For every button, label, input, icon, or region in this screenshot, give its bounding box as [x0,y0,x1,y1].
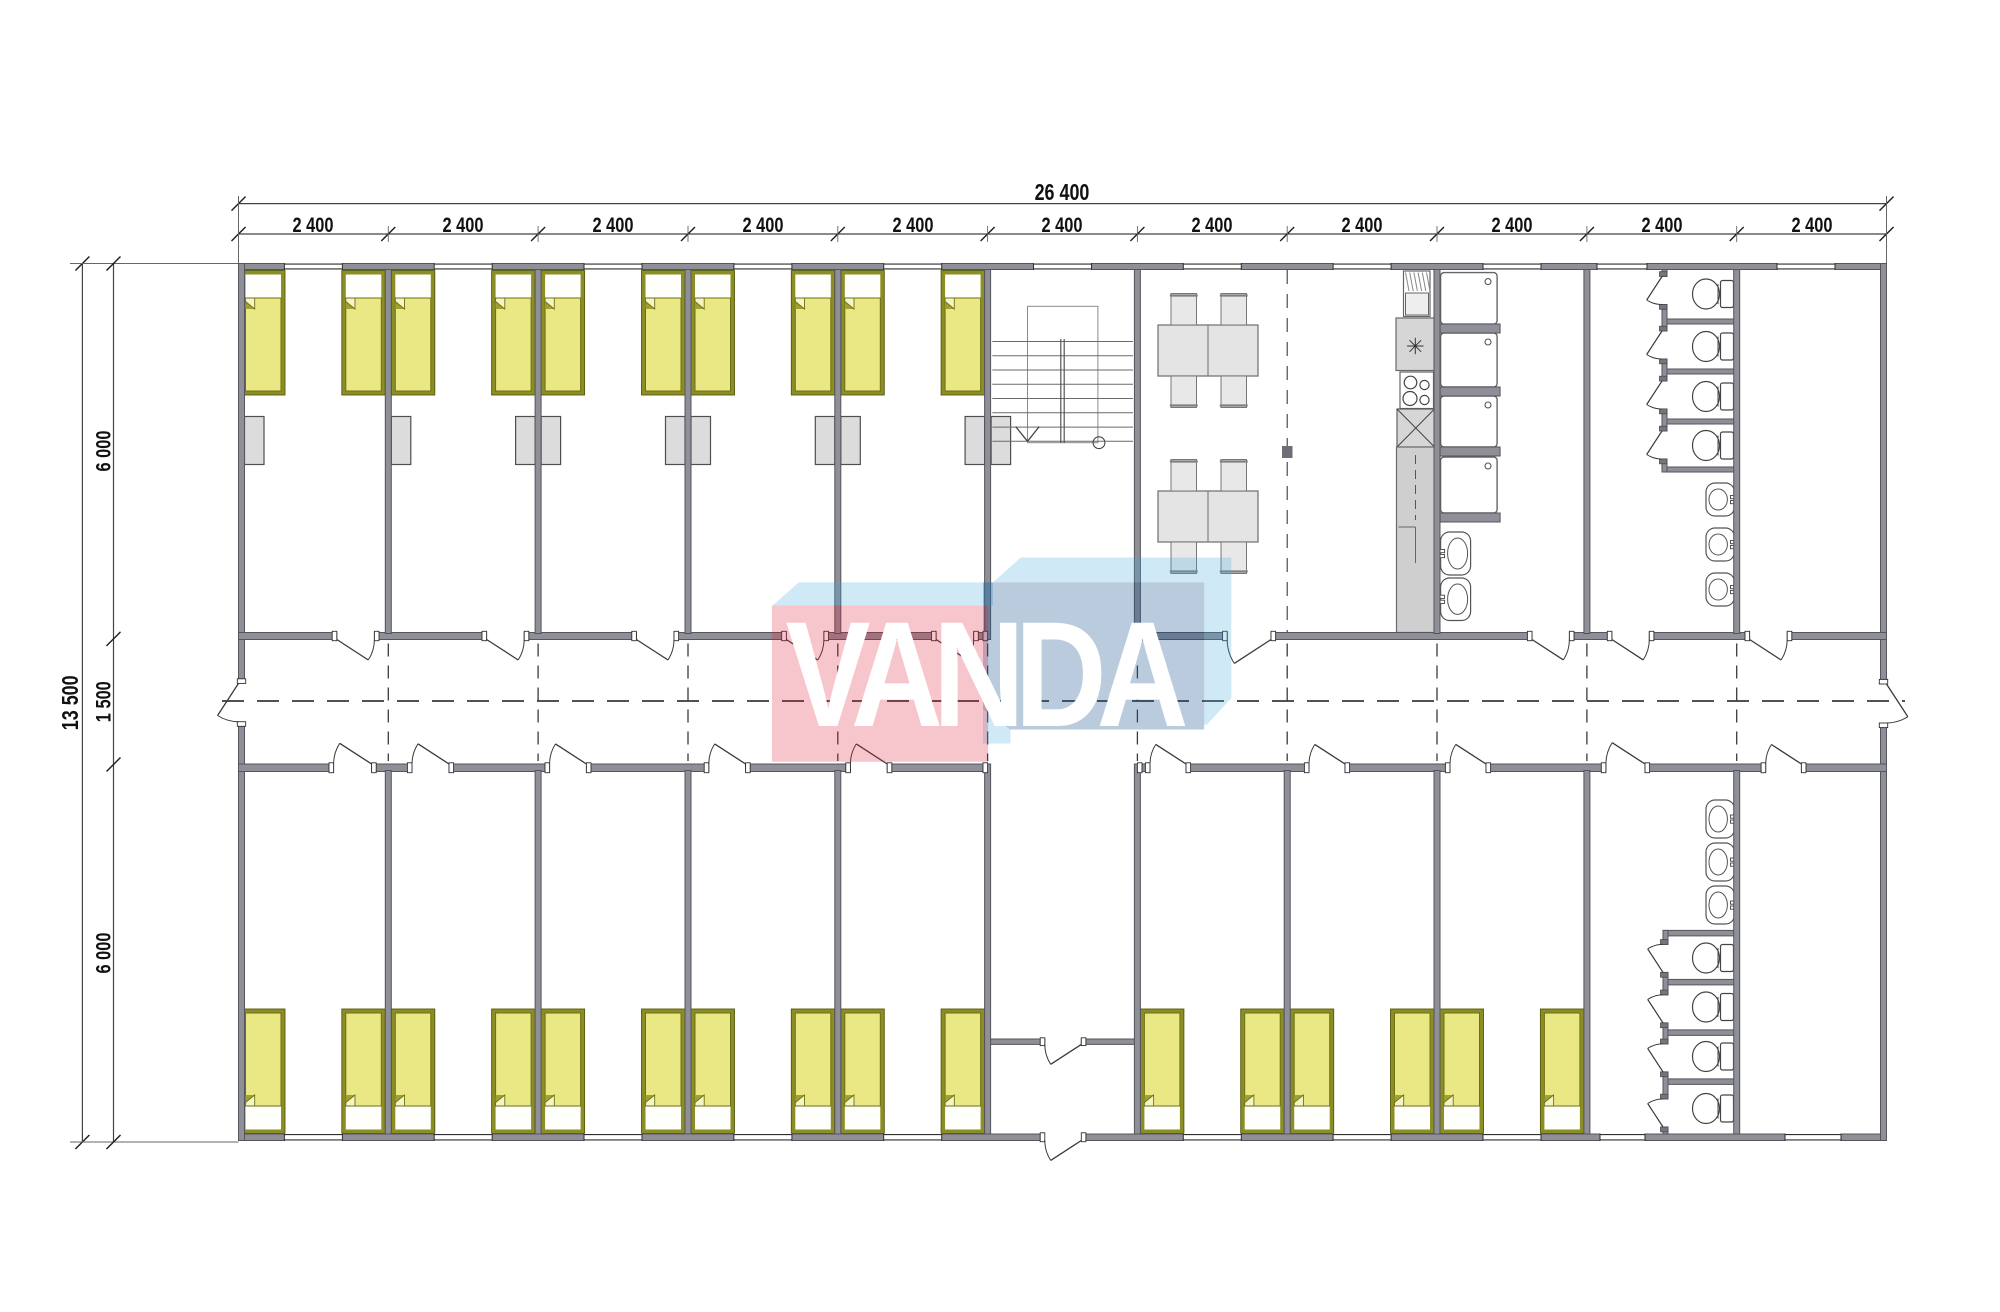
svg-text:2 400: 2 400 [1792,213,1833,236]
svg-text:2 400: 2 400 [593,213,634,236]
svg-text:2 400: 2 400 [293,213,334,236]
svg-text:2 400: 2 400 [1642,213,1683,236]
svg-text:1 500: 1 500 [92,681,115,722]
svg-text:2 400: 2 400 [1492,213,1533,236]
svg-text:2 400: 2 400 [893,213,934,236]
svg-text:2 400: 2 400 [1192,213,1233,236]
svg-text:26 400: 26 400 [1035,180,1090,206]
svg-text:13 500: 13 500 [58,675,84,730]
svg-text:2 400: 2 400 [1342,213,1383,236]
svg-text:2 400: 2 400 [743,213,784,236]
svg-text:VANDA: VANDA [786,591,1186,758]
svg-text:2 400: 2 400 [1042,213,1083,236]
svg-text:6 000: 6 000 [92,933,115,974]
svg-text:6 000: 6 000 [92,431,115,472]
svg-text:2 400: 2 400 [443,213,484,236]
